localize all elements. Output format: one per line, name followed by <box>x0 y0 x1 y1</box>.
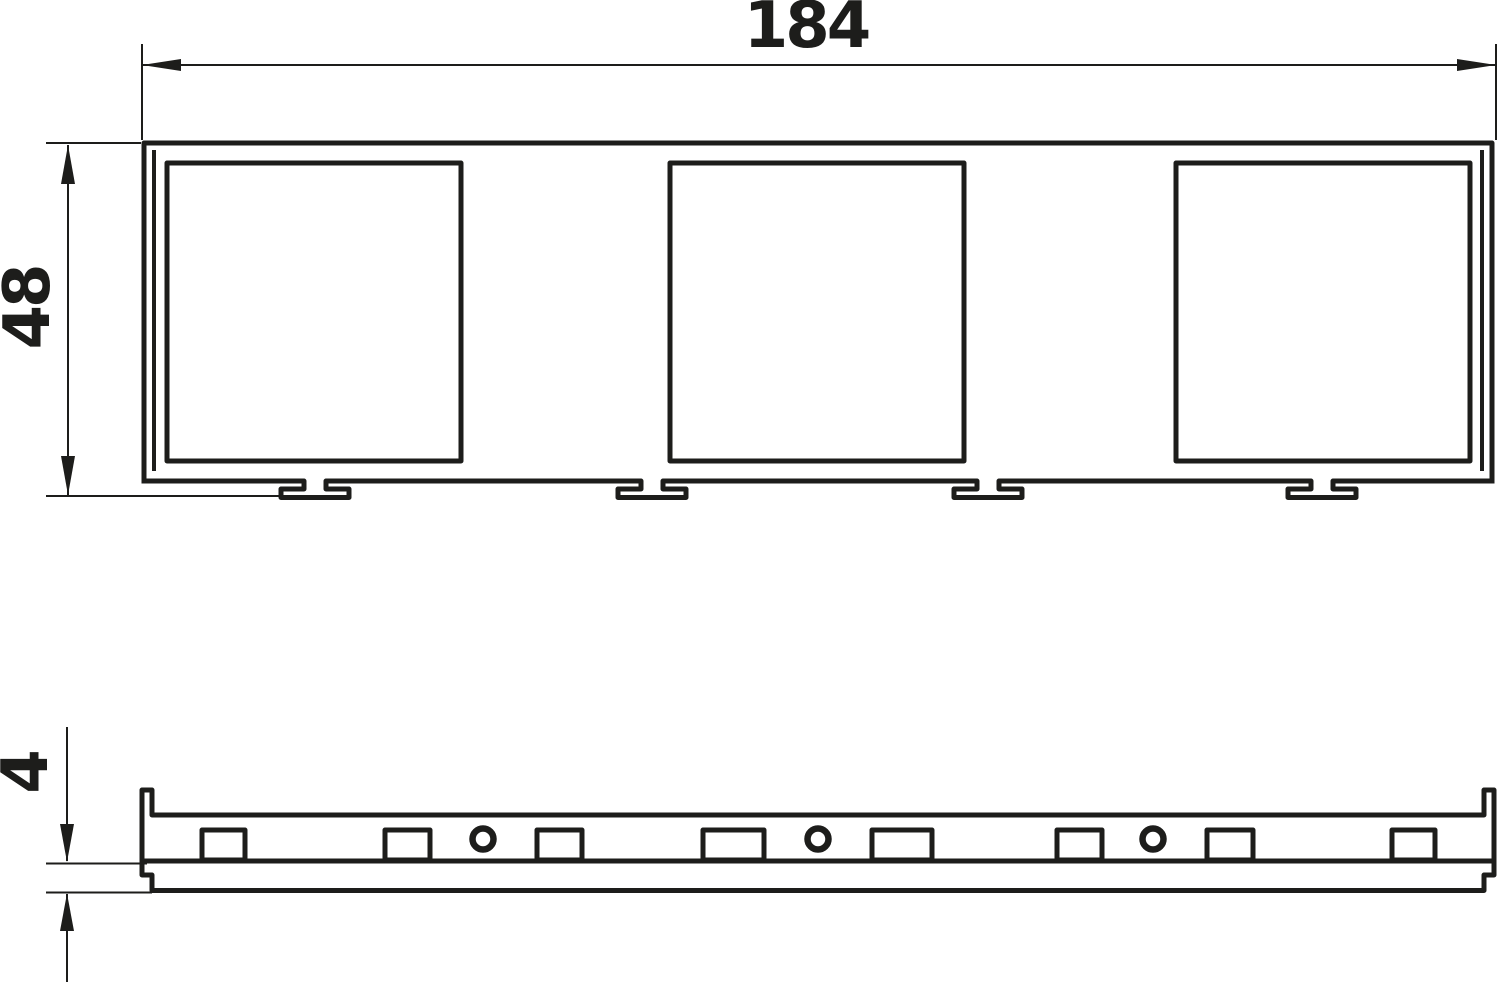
slot-marking <box>1207 830 1253 860</box>
round-hole <box>473 829 494 850</box>
frame-outline <box>144 143 1492 484</box>
round-hole <box>1143 829 1164 850</box>
thickness-arrow-down-icon <box>60 824 74 862</box>
thickness-arrow-up-icon <box>60 894 74 932</box>
technical-drawing <box>0 0 1500 986</box>
front-view <box>142 143 1495 498</box>
square-opening-3 <box>1176 163 1470 461</box>
frame-bottom-edge-with-feet <box>142 481 1495 498</box>
dimension-height <box>46 143 280 496</box>
round-hole <box>808 829 829 850</box>
slot-marking <box>537 830 582 860</box>
side-view <box>142 790 1494 891</box>
width-arrow-left-icon <box>142 59 181 71</box>
slot-marking <box>703 830 764 860</box>
height-arrow-bottom-icon <box>61 456 75 495</box>
slot-marking <box>1392 830 1435 860</box>
slot-marking <box>202 830 245 860</box>
side-lower-strip <box>142 861 1494 891</box>
square-opening-1 <box>167 163 461 461</box>
square-opening-2 <box>670 163 964 461</box>
height-arrow-top-icon <box>61 145 75 184</box>
slot-marking <box>872 830 932 860</box>
width-dimension-label: 184 <box>744 0 869 58</box>
drawing-canvas: 184 48 4 <box>0 0 1500 986</box>
thickness-dimension-label: 4 <box>0 752 58 794</box>
width-arrow-right-icon <box>1457 59 1496 71</box>
height-dimension-label: 48 <box>0 266 60 349</box>
slot-marking <box>1057 830 1102 860</box>
slot-marking <box>385 830 430 860</box>
